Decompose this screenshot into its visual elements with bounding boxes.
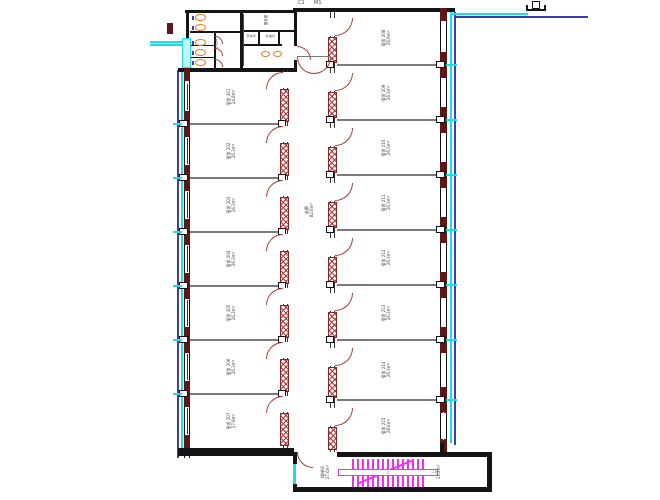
room-label: 宿舍 215 28.6m² — [381, 403, 391, 449]
wc-fixture — [195, 49, 206, 56]
room-label: 宿舍 208 26.9m² — [381, 15, 391, 61]
east-window-mullion — [443, 24, 444, 52]
east-window-mullion — [443, 134, 444, 162]
roof-pipe-blue — [456, 16, 588, 18]
room-divider — [337, 339, 440, 341]
wall-pier — [328, 367, 337, 398]
east-window-mullion — [443, 79, 444, 107]
wc-fixture — [195, 39, 206, 46]
room-divider — [337, 399, 440, 401]
wall-pier — [280, 413, 289, 446]
east-wall-pier — [440, 8, 447, 21]
door-arc — [266, 72, 283, 89]
wall-pier — [280, 89, 289, 122]
window-box — [436, 336, 445, 343]
room-divider — [190, 123, 283, 125]
wall-pier — [328, 202, 337, 228]
vent-symbol-base — [526, 9, 546, 11]
west-window-mullion — [187, 192, 188, 218]
wash-wall-h2 — [242, 44, 282, 46]
wc-supply-blue — [192, 16, 194, 20]
east-window-mullion — [443, 189, 444, 217]
toilet-riser-blue — [243, 14, 245, 66]
wc-fixture — [195, 14, 206, 21]
roof-pipe-cyan — [452, 13, 528, 15]
room-divider — [337, 284, 440, 286]
east-window-mullion — [443, 244, 444, 272]
east-window-mullion — [443, 356, 444, 384]
stair-label: 楼梯间 27.6m² — [320, 449, 330, 495]
wall-pier — [280, 305, 289, 338]
window-box — [326, 281, 334, 288]
west-window-tick — [173, 285, 182, 287]
axis-tag-left: C1 — [298, 0, 305, 6]
stair-left-window — [293, 464, 296, 484]
east-window-mullion — [443, 299, 444, 327]
window-box — [326, 336, 334, 343]
east-window-tick — [446, 64, 457, 66]
wc-supply-blue — [192, 51, 194, 55]
wall-pier — [328, 257, 337, 283]
room-divider — [190, 231, 283, 233]
door-arc — [335, 18, 353, 36]
vent-symbol-box — [532, 1, 540, 9]
room-label: 宿舍 210 26.3m² — [381, 125, 391, 171]
room-label: 宿舍 213 26.3m² — [381, 290, 391, 336]
wall-pier — [280, 197, 289, 230]
wall-pier — [280, 143, 289, 176]
corridor-label: 走廊 82.6m² — [304, 187, 314, 233]
wash-wall-v1 — [258, 30, 260, 44]
supply-shaft — [182, 38, 191, 68]
room-divider — [190, 339, 283, 341]
wall-pier — [328, 312, 337, 338]
room-divider — [337, 64, 440, 66]
east-pipe-cyan — [450, 12, 452, 443]
room-label: 宿舍 207 27.8m² — [226, 398, 236, 444]
door-arc — [266, 180, 283, 197]
window-box — [436, 116, 445, 123]
west-window-tick — [173, 123, 182, 125]
west-wall-pier — [184, 435, 190, 448]
west-window-tick — [173, 339, 182, 341]
wc-supply-blue — [192, 41, 194, 45]
supply-valve — [167, 23, 173, 34]
east-window-tick — [446, 119, 457, 121]
wc-fixture — [195, 59, 206, 66]
clean-label: 清洁间 — [263, 35, 277, 39]
west-pipe-blue — [177, 70, 179, 458]
door-arc — [335, 348, 353, 366]
toilet-label: 卫生间 — [214, 27, 222, 61]
left-wing-bottom-wall — [178, 448, 294, 456]
west-wall-pier — [184, 68, 190, 81]
window-box — [326, 226, 334, 233]
west-window-mullion — [187, 354, 188, 380]
window-box — [326, 396, 334, 403]
door-arc — [266, 288, 283, 305]
west-window-tick — [173, 177, 182, 179]
west-window-mullion — [187, 300, 188, 326]
window-box — [436, 171, 445, 178]
west-window-mullion — [187, 84, 188, 110]
wc-supply-blue — [192, 61, 194, 65]
door-arc — [266, 234, 283, 251]
west-pipe-cyan — [181, 72, 183, 456]
east-window-tick — [446, 339, 457, 341]
wc-supply-blue — [192, 26, 194, 30]
stair-right-wall — [487, 452, 492, 492]
window-box — [436, 226, 445, 233]
room-divider — [337, 119, 440, 121]
door-arc — [335, 73, 353, 91]
door-arc — [335, 238, 353, 256]
window-box — [326, 171, 334, 178]
room-label: 宿舍 204 26.3m² — [226, 236, 236, 282]
stair-entry-arc — [297, 452, 313, 468]
east-window-tick — [446, 284, 457, 286]
stair-left-wall-lower — [293, 484, 297, 487]
door-arc — [266, 342, 283, 359]
window-box — [326, 116, 334, 123]
stair-up-label: 上 — [368, 471, 408, 475]
east-window-tick — [446, 174, 457, 176]
wash-fixture — [273, 51, 282, 57]
window-box — [436, 396, 445, 403]
room-label: 宿舍 202 26.3m² — [226, 128, 236, 174]
door-arc — [335, 183, 353, 201]
room-divider — [190, 285, 283, 287]
door-arc — [335, 408, 353, 426]
supply-pipe-cyan2 — [150, 44, 182, 46]
axis-tag-right: M1 — [314, 0, 322, 6]
wall-pier — [328, 147, 337, 173]
room-label: 宿舍 209 26.3m² — [381, 70, 391, 116]
wash-label: 盥洗室 — [264, 3, 272, 37]
water-label: 开水间 — [244, 35, 258, 39]
room-label: 宿舍 214 26.3m² — [381, 347, 391, 393]
door-arc — [335, 293, 353, 311]
room-divider — [337, 174, 440, 176]
window-box — [436, 281, 445, 288]
stair-landing-label: 上 13.2m² — [431, 449, 441, 495]
room-label: 宿舍 211 26.3m² — [381, 180, 391, 226]
room-divider — [337, 229, 440, 231]
wall-pier — [328, 92, 337, 118]
wash-wall-v2 — [278, 30, 280, 44]
wall-pier — [280, 359, 289, 392]
toilet-stall-line — [190, 57, 214, 59]
room-label: 宿舍 206 26.3m² — [226, 344, 236, 390]
toilet-door-arc — [297, 46, 311, 60]
floor-plan: C1 M1 宿舍 201 24.8m²宿舍 202 26.3m²宿舍 203 2… — [0, 0, 660, 500]
top-wall — [293, 8, 455, 12]
west-window-mullion — [187, 246, 188, 272]
window-box — [436, 61, 445, 68]
wall-pier — [328, 427, 337, 450]
room-label: 宿舍 203 26.3m² — [226, 182, 236, 228]
double-door-right-arc — [314, 57, 331, 74]
east-window-tick — [446, 399, 457, 401]
stair-top-wall — [337, 452, 492, 457]
wash-fixture — [261, 51, 270, 57]
door-arc — [335, 128, 353, 146]
room-label: 宿舍 205 26.3m² — [226, 290, 236, 336]
wall-pier — [280, 251, 289, 284]
west-window-tick — [173, 231, 182, 233]
wc-fixture — [195, 24, 206, 31]
room-label: 宿舍 201 24.8m² — [226, 74, 236, 120]
east-window-mullion — [443, 412, 444, 440]
west-window-mullion — [187, 408, 188, 434]
east-window-tick — [446, 229, 457, 231]
room-divider — [190, 393, 283, 395]
west-window-mullion — [187, 138, 188, 164]
room-divider — [190, 177, 283, 179]
door-arc — [266, 126, 283, 143]
room-label: 宿舍 212 26.3m² — [381, 235, 391, 281]
door-arc — [266, 396, 283, 413]
west-window-tick — [173, 393, 182, 395]
